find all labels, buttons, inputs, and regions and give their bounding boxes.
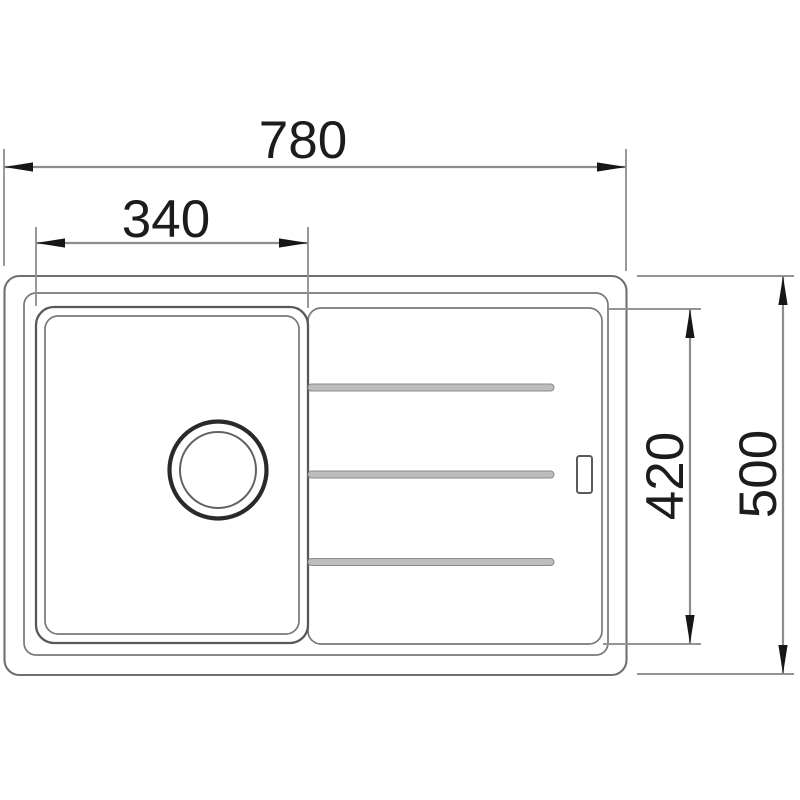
- arrow-up-icon: [685, 309, 694, 338]
- dimension-bowl-width: 340: [36, 190, 308, 308]
- drain-outer-circle: [170, 422, 267, 519]
- arrow-down-icon: [778, 645, 787, 674]
- dim-780-label: 780: [259, 111, 347, 170]
- technical-drawing-canvas: 780 340 420 500: [0, 0, 800, 800]
- overflow-slot: [577, 456, 592, 493]
- drainboard-groove-line: [308, 384, 554, 391]
- dimension-inner-depth: 420: [603, 309, 701, 644]
- dim-500-label: 500: [729, 430, 788, 518]
- drain-inner-circle: [180, 432, 256, 508]
- dimension-overall-width: 780: [4, 111, 626, 271]
- arrow-up-icon: [778, 276, 787, 305]
- arrow-left-icon: [36, 238, 65, 247]
- dim-420-label: 420: [636, 432, 695, 520]
- dim-340-label: 340: [122, 190, 210, 249]
- drainboard-groove-line: [308, 559, 554, 566]
- bowl-inner-edge: [45, 316, 299, 634]
- arrow-right-icon: [279, 238, 308, 247]
- sink-body: [5, 276, 627, 675]
- arrow-down-icon: [685, 615, 694, 644]
- sink-dimension-diagram: 780 340 420 500: [0, 0, 800, 800]
- arrow-left-icon: [4, 162, 33, 171]
- drainboard-groove-line: [308, 471, 554, 478]
- arrow-right-icon: [597, 162, 626, 171]
